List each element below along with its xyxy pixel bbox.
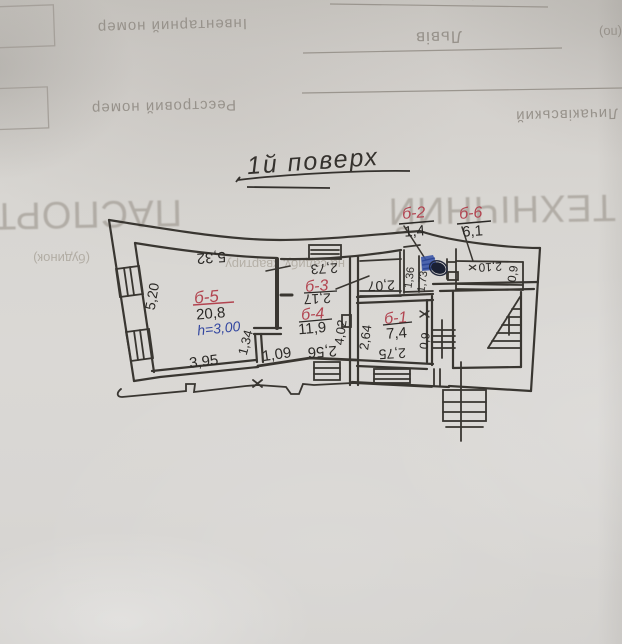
svg-text:ПАСПОРТ: ПАСПОРТ (0, 191, 182, 236)
svg-text:2,75: 2,75 (378, 345, 406, 362)
svg-text:0,9: 0,9 (505, 264, 521, 283)
svg-text:5,32: 5,32 (196, 248, 226, 267)
svg-text:б-6: б-6 (459, 204, 483, 223)
svg-text:2,10: 2,10 (478, 259, 502, 274)
svg-text:4,02: 4,02 (331, 319, 349, 346)
svg-text:(по): (по) (599, 25, 622, 41)
svg-text:2,07: 2,07 (367, 277, 395, 294)
svg-text:Личаківський: Личаківський (515, 105, 618, 125)
svg-text:1,73: 1,73 (416, 270, 431, 293)
svg-text:2,64: 2,64 (356, 324, 374, 351)
svg-text:11,9: 11,9 (297, 319, 326, 338)
svg-text:0,9: 0,9 (417, 331, 433, 350)
svg-text:Львів: Львів (415, 27, 462, 47)
svg-text:5,20: 5,20 (142, 281, 163, 311)
svg-text:(будинок): (будинок) (33, 251, 90, 266)
svg-text:6,1: 6,1 (462, 222, 484, 240)
svg-text:7,4: 7,4 (386, 324, 408, 342)
svg-text:Реєстровий номер: Реєстровий номер (91, 96, 236, 117)
svg-text:міської ради: міської ради (393, 0, 485, 3)
svg-text:2,73: 2,73 (310, 260, 338, 277)
svg-text:3,95: 3,95 (188, 352, 219, 372)
svg-text:б-2: б-2 (402, 204, 426, 223)
svg-text:1,36: 1,36 (403, 266, 418, 289)
svg-text:1,4: 1,4 (404, 222, 426, 240)
svg-text:Інвентарний номер: Інвентарний номер (97, 15, 248, 36)
svg-text:h=3,00: h=3,00 (196, 318, 241, 338)
